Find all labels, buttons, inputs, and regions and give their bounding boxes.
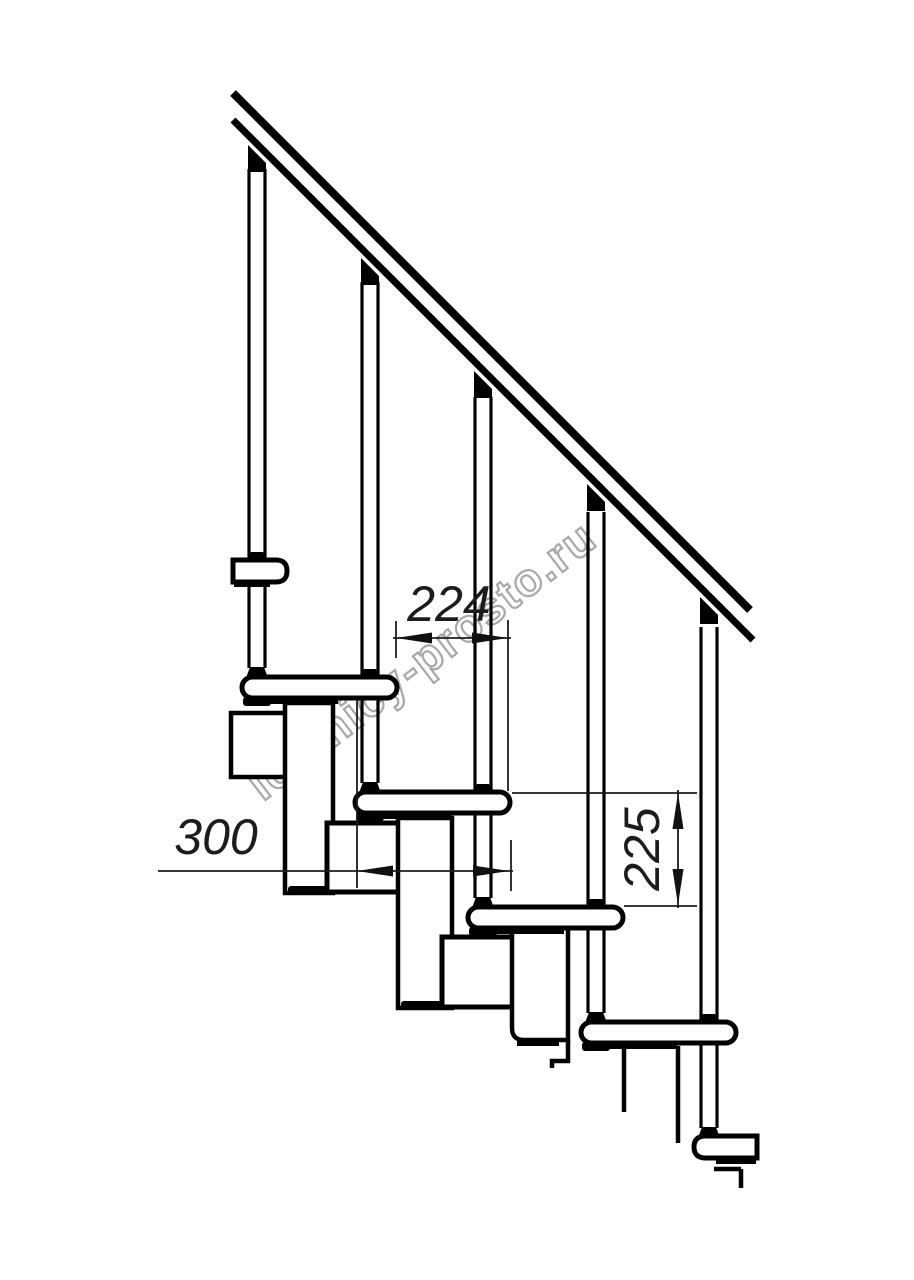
dim-label-224: 224	[406, 576, 490, 632]
floor-edge	[714, 1169, 741, 1188]
tread-3	[355, 792, 510, 813]
tread-1-seam	[234, 582, 270, 587]
mount-baluster-2	[359, 782, 381, 793]
dim-label-225: 225	[614, 807, 670, 892]
tread-2	[242, 677, 397, 698]
tread-2-mount-plate	[243, 697, 271, 706]
module-column-3	[512, 930, 568, 1040]
baluster-1	[249, 169, 265, 668]
arrow-225-down	[673, 869, 684, 905]
tread-4-seam	[496, 927, 564, 934]
tread-3-mount-plate	[356, 812, 384, 821]
dim-label-300: 300	[174, 809, 258, 865]
tread-4	[468, 907, 623, 928]
mount-baluster-3	[472, 897, 494, 908]
staircase-structure	[231, 93, 757, 1188]
mount-baluster-5	[698, 1127, 720, 1138]
mount-baluster-1	[246, 667, 268, 678]
upper-landing-block	[231, 713, 287, 777]
tread-3-seam	[383, 812, 451, 819]
tread-5-mount-plate	[582, 1042, 610, 1051]
baluster-4	[588, 512, 604, 1013]
module-block-2	[442, 937, 518, 1007]
tread-6	[694, 1136, 757, 1158]
baluster-5	[701, 627, 717, 1128]
tread-1	[233, 560, 287, 582]
module-block-1	[327, 823, 405, 892]
handrail	[233, 93, 753, 640]
handrail-bottom-line	[233, 120, 753, 640]
module-column-3-foot	[517, 1040, 559, 1046]
arrow-225-up	[673, 793, 684, 829]
tread-5	[581, 1022, 736, 1043]
tread-6-seam	[716, 1157, 756, 1164]
staircase-drawing: lestnicy-prosto.ru	[0, 0, 914, 1280]
technical-drawing-canvas: lestnicy-prosto.ru	[0, 0, 914, 1280]
module-column-1-foot	[288, 886, 330, 895]
mount-baluster-4	[585, 1012, 607, 1023]
tread-5-seam	[609, 1042, 677, 1049]
tread-4-mount-plate	[469, 927, 497, 936]
tread-2-seam	[270, 697, 338, 704]
